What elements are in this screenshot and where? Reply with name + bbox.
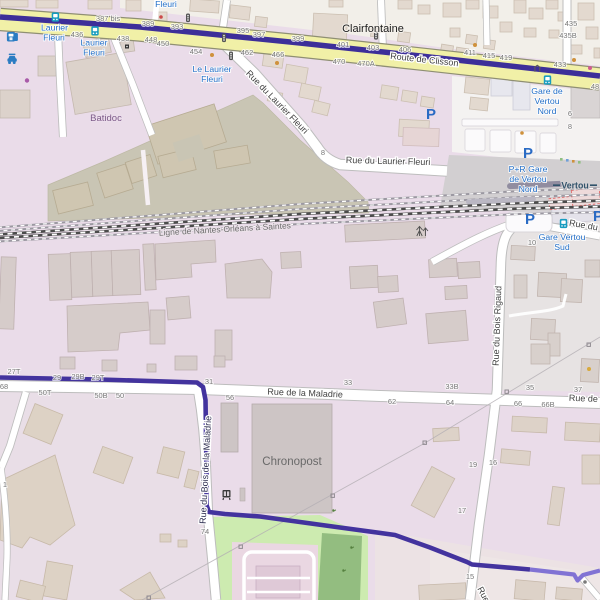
svg-text:403: 403 [367,43,380,52]
svg-text:50: 50 [116,391,124,400]
svg-text:438: 438 [117,34,130,43]
svg-text:48: 48 [591,82,599,91]
svg-text:31: 31 [205,377,213,386]
svg-text:454: 454 [190,47,203,56]
svg-text:Laurier: Laurier [41,23,68,33]
svg-text:56: 56 [226,393,234,402]
svg-text:27T: 27T [8,367,21,376]
svg-text:1: 1 [3,480,7,489]
svg-text:Rue de la: Rue de la [569,393,600,405]
svg-text:Fleuri: Fleuri [83,48,105,58]
svg-text:33B: 33B [445,382,458,391]
svg-text:462: 462 [241,48,254,57]
svg-text:68: 68 [0,382,8,391]
svg-text:10: 10 [528,238,536,247]
svg-text:393: 393 [171,22,184,31]
svg-text:33: 33 [344,378,352,387]
svg-text:P: P [426,106,436,123]
svg-text:Fleuri: Fleuri [155,0,177,9]
svg-text:Batidoc: Batidoc [90,113,122,124]
svg-text:P+R Gare: P+R Gare [509,164,548,174]
svg-text:Gare de: Gare de [531,86,563,96]
svg-text:436: 436 [71,30,84,39]
svg-text:50T: 50T [39,388,52,397]
svg-text:Nord: Nord [538,106,557,116]
svg-text:Vertou: Vertou [561,181,588,191]
svg-text:435: 435 [565,19,578,28]
svg-text:Chronopost: Chronopost [262,456,322,468]
svg-text:8: 8 [568,122,572,131]
svg-text:415: 415 [483,51,496,60]
svg-text:P: P [593,208,600,225]
svg-text:Sud: Sud [554,242,570,252]
svg-text:Laurier: Laurier [80,38,107,48]
svg-text:448: 448 [145,35,158,44]
svg-text:29B: 29B [71,372,84,381]
svg-text:6: 6 [568,109,572,118]
svg-text:389: 389 [142,19,155,28]
svg-text:74: 74 [201,527,209,536]
svg-text:62: 62 [388,397,396,406]
svg-text:Fleuri: Fleuri [201,74,223,84]
svg-text:50B: 50B [94,391,107,400]
svg-text:Vertou: Vertou [534,96,559,106]
svg-text:466: 466 [272,50,285,59]
svg-text:66: 66 [514,399,522,408]
svg-text:15: 15 [466,572,474,581]
svg-text:411: 411 [464,48,476,57]
svg-text:P: P [523,145,533,162]
svg-text:395: 395 [237,26,250,35]
svg-text:de Vertou: de Vertou [509,174,546,184]
svg-text:470A: 470A [357,59,375,68]
svg-text:8: 8 [321,148,325,157]
svg-text:66B: 66B [541,400,554,409]
svg-text:Fleuri: Fleuri [43,33,65,43]
svg-text:16: 16 [489,458,497,467]
svg-text:P: P [525,211,535,228]
svg-text:Clairfontaine: Clairfontaine [342,23,404,35]
svg-text:29: 29 [53,373,61,382]
svg-text:35: 35 [526,383,534,392]
svg-text:419: 419 [500,53,513,62]
svg-text:19: 19 [469,460,477,469]
svg-text:64: 64 [446,398,454,407]
svg-text:37: 37 [574,385,582,394]
svg-text:Gare Vertou: Gare Vertou [539,232,586,242]
svg-text:397: 397 [253,30,266,39]
svg-text:17: 17 [458,506,466,515]
svg-text:406: 406 [399,45,412,54]
svg-text:450: 450 [157,39,170,48]
svg-text:29T: 29T [92,373,105,382]
svg-text:401: 401 [337,40,350,49]
svg-text:433: 433 [554,60,567,69]
svg-text:399: 399 [292,34,305,43]
svg-text:387 bis: 387 bis [96,14,120,23]
svg-text:Nord: Nord [519,184,538,194]
svg-text:435B: 435B [559,31,577,40]
svg-text:Le Laurier: Le Laurier [192,64,231,74]
svg-text:470: 470 [333,57,346,66]
